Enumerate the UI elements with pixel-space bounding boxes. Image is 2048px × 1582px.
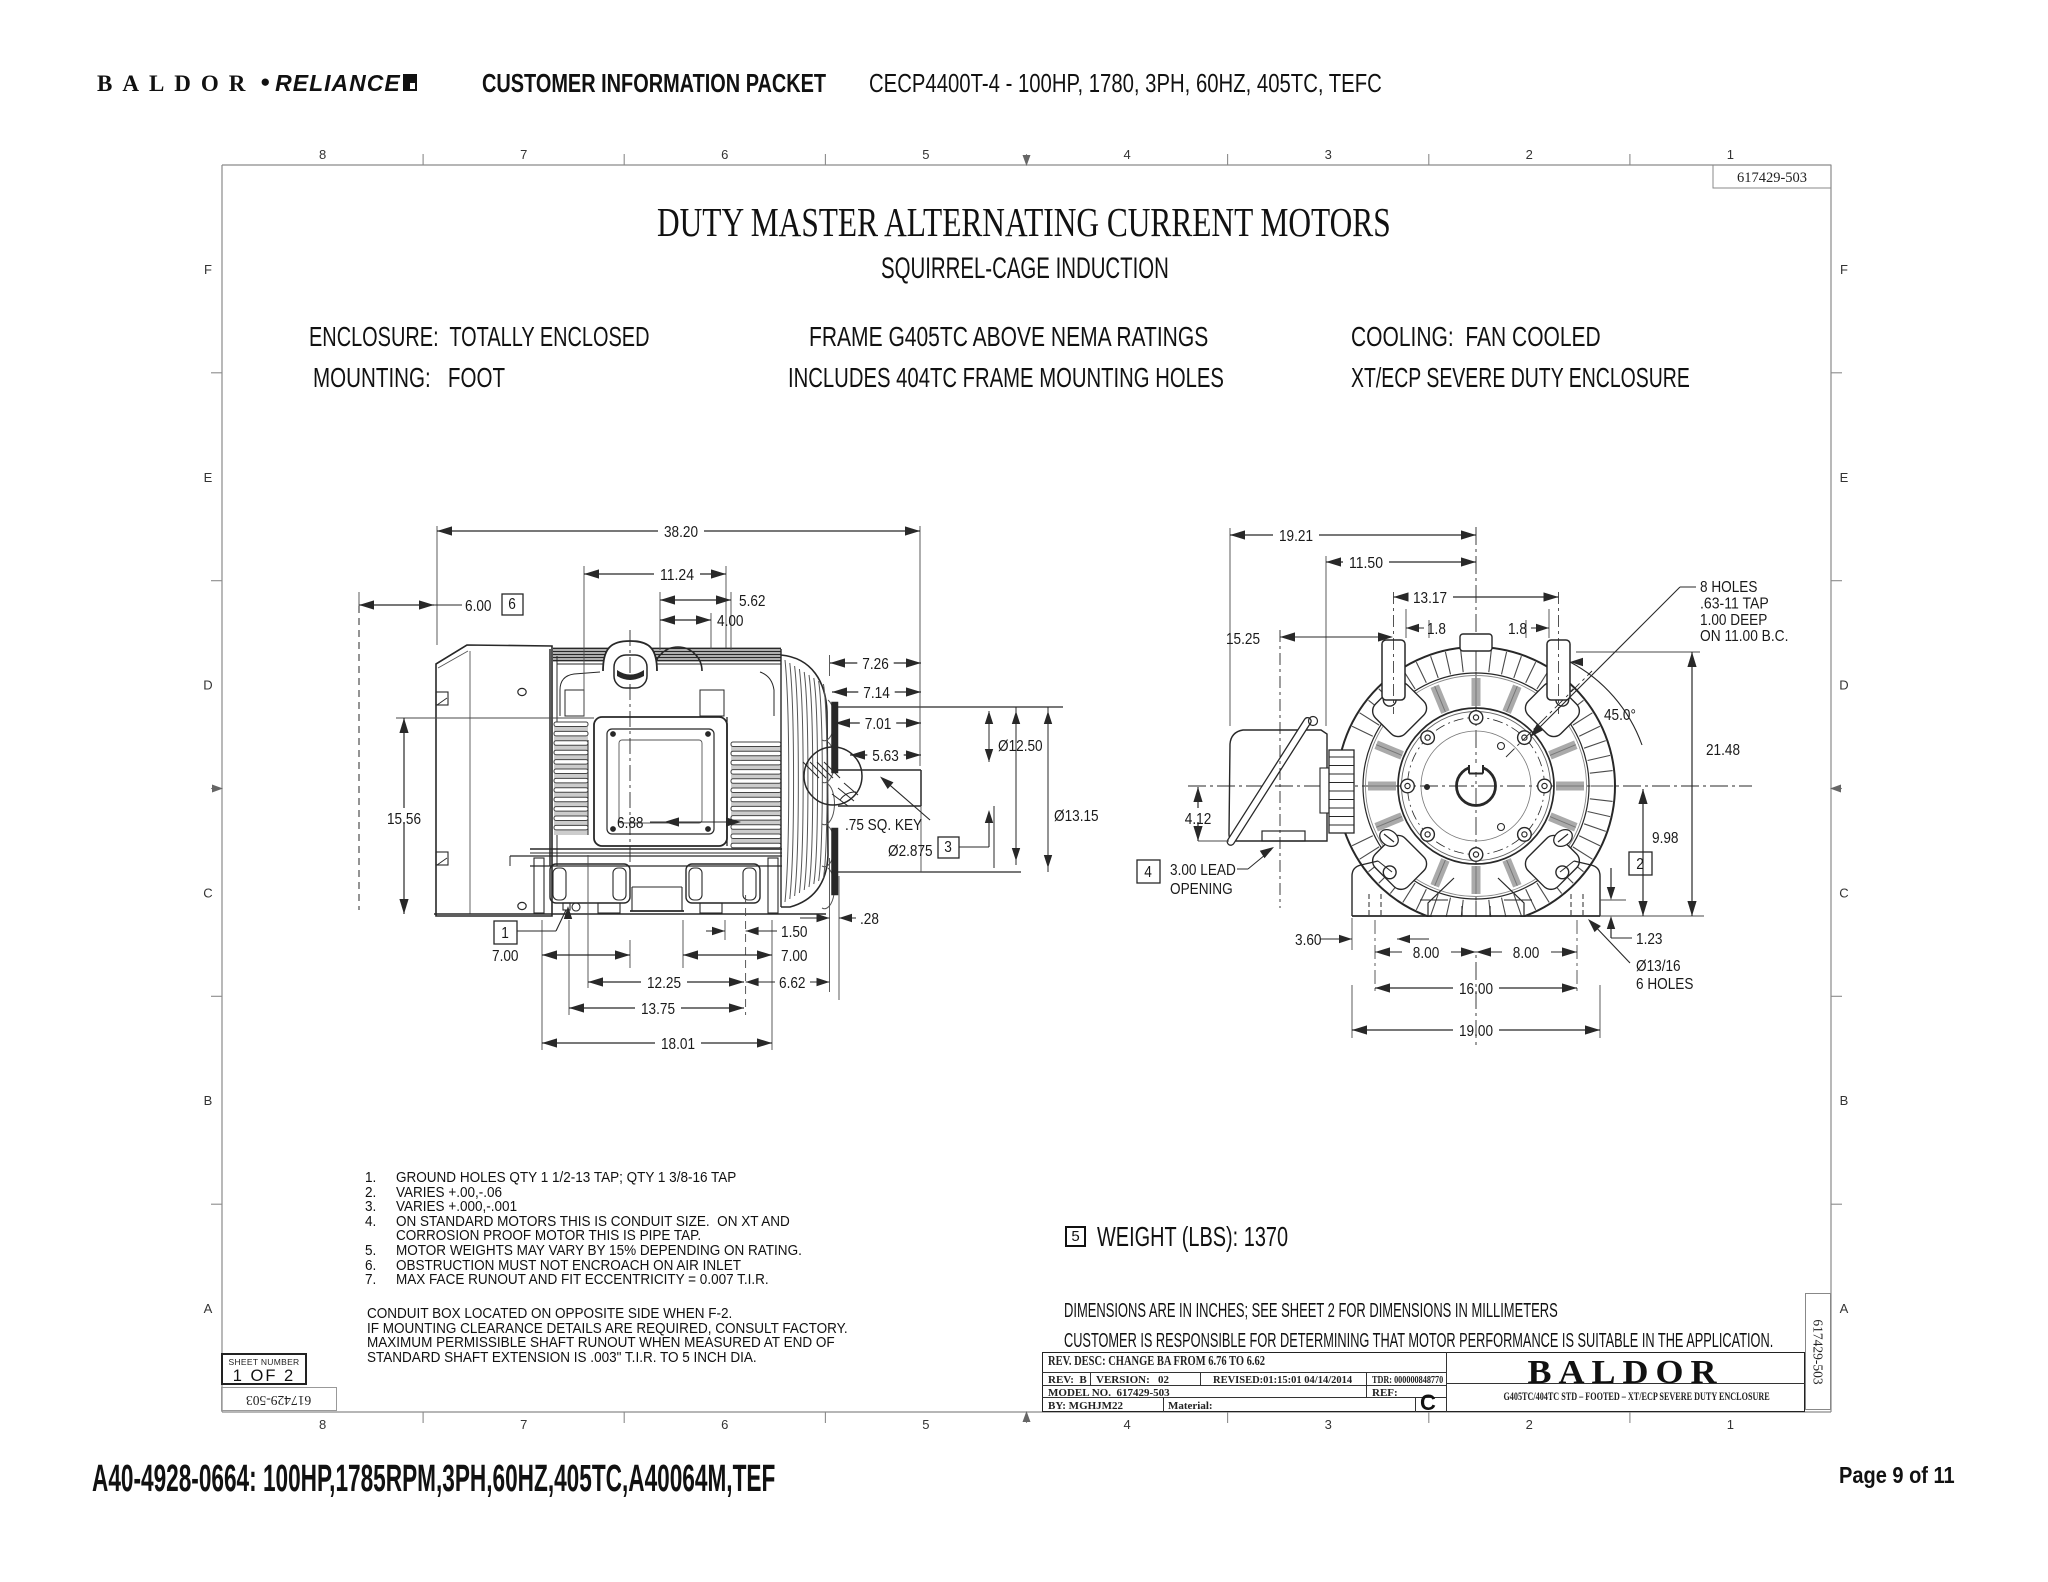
svg-text:3: 3 [1325,1417,1332,1432]
svg-text:5.62: 5.62 [739,593,766,610]
svg-text:F: F [1840,262,1848,277]
svg-text:E: E [204,470,213,485]
svg-text:6: 6 [508,596,516,613]
svg-text:6: 6 [721,147,728,162]
svg-text:18.01: 18.01 [661,1036,695,1053]
svg-text:7: 7 [520,147,527,162]
svg-text:11.24: 11.24 [660,567,694,584]
svg-text:8: 8 [319,147,326,162]
svg-text:15.56: 15.56 [387,811,421,828]
svg-text:13.17: 13.17 [1413,590,1447,607]
svg-text:.28: .28 [860,911,879,928]
svg-text:3.60: 3.60 [1295,932,1322,949]
svg-text:4: 4 [1123,147,1130,162]
svg-text:45.0°: 45.0° [1604,707,1636,724]
svg-text:A: A [204,1301,213,1316]
svg-text:C: C [203,885,212,900]
svg-text:2: 2 [1526,1417,1533,1432]
svg-text:7.00: 7.00 [492,948,519,965]
svg-text:1.8: 1.8 [1508,621,1527,638]
svg-text:617429-503: 617429-503 [1737,170,1807,186]
svg-text:B: B [204,1093,213,1108]
svg-text:9.98: 9.98 [1652,830,1679,847]
svg-text:Ø13.15: Ø13.15 [1054,808,1099,825]
svg-text:.75 SQ. KEY: .75 SQ. KEY [845,817,922,834]
svg-text:6.00: 6.00 [465,598,492,615]
svg-text:4: 4 [1123,1417,1130,1432]
svg-text:5.63: 5.63 [872,748,899,765]
svg-text:16.00: 16.00 [1459,981,1493,998]
svg-text:4.00: 4.00 [717,613,744,630]
svg-text:19.00: 19.00 [1459,1023,1493,1040]
svg-text:D: D [1839,678,1848,693]
svg-text:8.00: 8.00 [1413,945,1440,962]
svg-text:1.23: 1.23 [1636,931,1663,948]
svg-text:7: 7 [520,1417,527,1432]
svg-text:F: F [204,262,212,277]
svg-text:5: 5 [922,147,929,162]
svg-text:12.25: 12.25 [647,975,681,992]
svg-text:6: 6 [721,1417,728,1432]
svg-text:1: 1 [1727,147,1734,162]
svg-text:A: A [1840,1301,1849,1316]
svg-text:38.20: 38.20 [664,524,698,541]
svg-text:1: 1 [1727,1417,1734,1432]
svg-text:C: C [1839,885,1848,900]
svg-text:B: B [1840,1093,1849,1108]
svg-text:7.26: 7.26 [862,656,889,673]
svg-text:11.50: 11.50 [1349,555,1383,572]
svg-text:Ø13/16: Ø13/16 [1636,958,1681,975]
svg-text:2: 2 [1526,147,1533,162]
svg-text:13.75: 13.75 [641,1001,675,1018]
svg-text:E: E [1840,470,1849,485]
svg-text:D: D [203,678,212,693]
svg-text:Ø2.875: Ø2.875 [888,843,933,860]
svg-text:8.00: 8.00 [1513,945,1540,962]
svg-text:1: 1 [501,925,509,942]
svg-text:ON 11.00 B.C.: ON 11.00 B.C. [1700,628,1788,645]
svg-text:8: 8 [319,1417,326,1432]
svg-text:2: 2 [1636,856,1644,873]
svg-text:7.00: 7.00 [781,948,808,965]
svg-text:3: 3 [944,839,952,856]
svg-text:OPENING: OPENING [1170,881,1233,898]
svg-text:3.00 LEAD: 3.00 LEAD [1170,862,1236,879]
svg-text:4.12: 4.12 [1185,811,1212,828]
svg-text:7.14: 7.14 [863,685,890,702]
svg-text:19.21: 19.21 [1279,528,1313,545]
svg-text:5: 5 [922,1417,929,1432]
svg-text:4: 4 [1144,864,1152,881]
svg-text:1.8: 1.8 [1427,621,1446,638]
svg-text:6 HOLES: 6 HOLES [1636,976,1693,993]
svg-text:3: 3 [1325,147,1332,162]
svg-text:6.62: 6.62 [779,975,806,992]
svg-text:1.50: 1.50 [781,924,808,941]
svg-text:1.00 DEEP: 1.00 DEEP [1700,612,1767,629]
svg-text:.63-11 TAP: .63-11 TAP [1700,595,1769,612]
svg-text:21.48: 21.48 [1706,742,1740,759]
svg-text:8 HOLES: 8 HOLES [1700,579,1757,596]
svg-text:15.25: 15.25 [1226,631,1260,648]
svg-text:7.01: 7.01 [865,716,892,733]
svg-text:Ø12.50: Ø12.50 [998,738,1043,755]
